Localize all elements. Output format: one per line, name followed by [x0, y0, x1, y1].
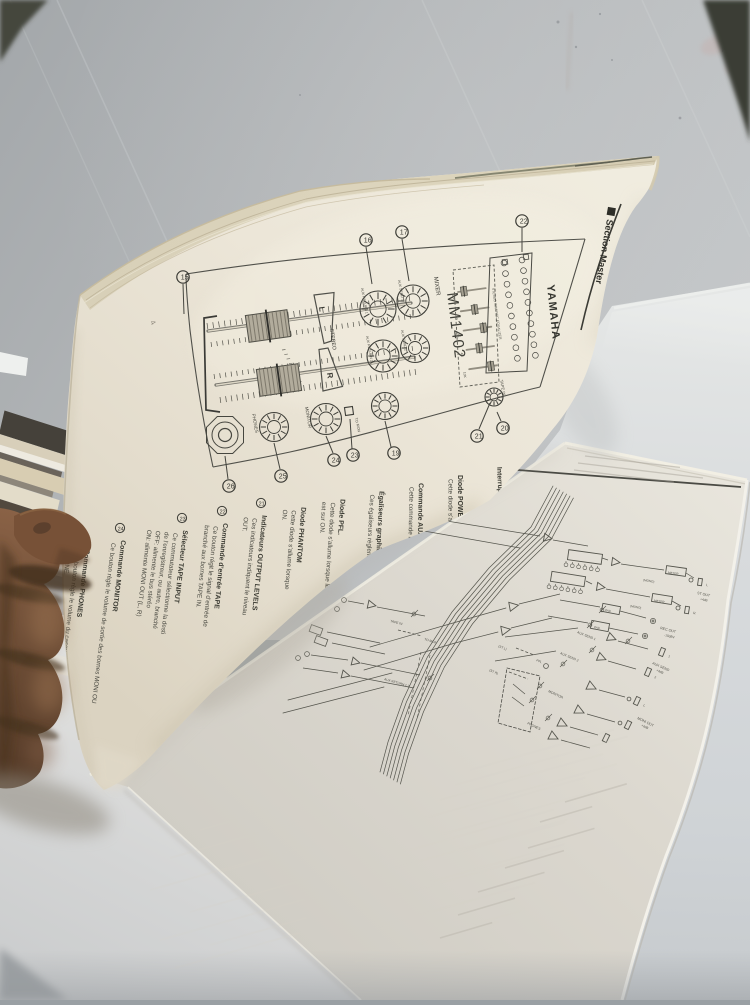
svg-text:21: 21 [475, 434, 483, 441]
svg-text:24: 24 [332, 458, 340, 465]
svg-text:20: 20 [501, 426, 509, 433]
svg-text:ON.: ON. [280, 509, 288, 521]
svg-text:25: 25 [279, 474, 287, 481]
svg-text:22: 22 [220, 510, 226, 516]
svg-text:16: 16 [364, 238, 372, 245]
svg-text:100: 100 [451, 294, 456, 300]
svg-text:23: 23 [351, 453, 359, 460]
svg-text:Diode POWER: Diode POWER [456, 475, 463, 522]
svg-text:400: 400 [454, 314, 459, 320]
svg-text:19: 19 [392, 451, 400, 458]
svg-text:24: 24 [118, 527, 124, 533]
svg-text:22: 22 [520, 219, 528, 226]
svg-text:15: 15 [181, 275, 189, 282]
svg-text:17: 17 [400, 230, 408, 237]
svg-text:26: 26 [227, 484, 235, 491]
svg-text:23: 23 [180, 517, 186, 523]
svg-text:21: 21 [259, 502, 265, 508]
